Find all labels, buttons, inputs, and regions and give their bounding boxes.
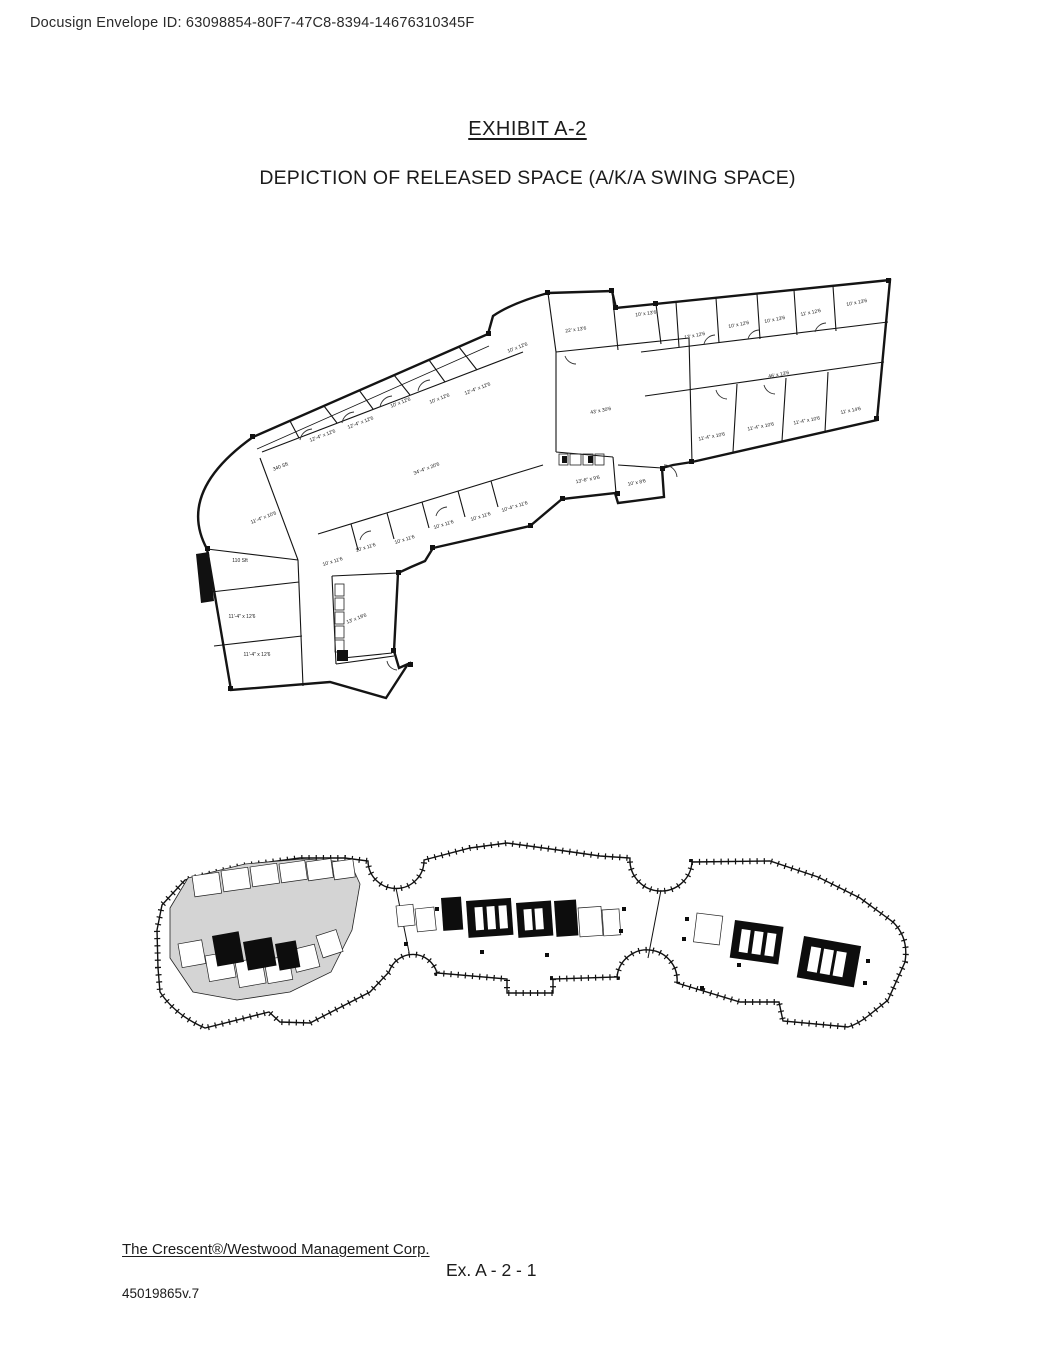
footer-company-line: The Crescent®/Westwood Management Corp. (122, 1241, 430, 1258)
plan-detail-outline (198, 280, 890, 698)
room-dimension-label: 110 Sft (232, 558, 248, 564)
floor-plan-detail: 340 Sft12'-4" x 12'612'-4" x 12'610' x 1… (196, 278, 891, 698)
document-page: Docusign Envelope ID: 63098854-80F7-47C8… (0, 0, 1055, 1365)
floor-plan-canvas: 340 Sft12'-4" x 12'612'-4" x 12'610' x 1… (0, 0, 1055, 1365)
footer-doc-version: 45019865v.7 (122, 1286, 199, 1301)
room-dimension-label: 11'-4" x 12'6 (244, 652, 271, 658)
floor-plan-key (157, 843, 906, 1028)
footer-exhibit-ref: Ex. A - 2 - 1 (446, 1260, 536, 1281)
room-dimension-label: 11'-4" x 12'6 (229, 614, 256, 620)
